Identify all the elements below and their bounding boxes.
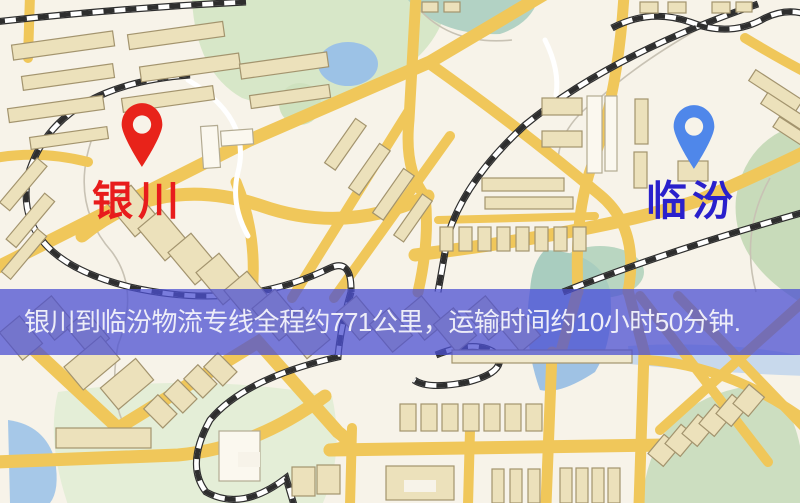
origin-label: 银川 xyxy=(78,181,198,222)
destination-label: 临汾 xyxy=(632,181,752,222)
map-pin-icon xyxy=(672,104,716,170)
route-info-text: 银川到临汾物流专线全程约771公里，运输时间约10小时50分钟. xyxy=(24,309,740,335)
map-pin-icon xyxy=(120,102,164,168)
origin-pin[interactable] xyxy=(120,102,164,168)
route-info-banner: 银川到临汾物流专线全程约771公里，运输时间约10小时50分钟. xyxy=(0,289,800,355)
map-view: 银川到临汾物流专线全程约771公里，运输时间约10小时50分钟. 银川 临汾 xyxy=(0,0,800,503)
destination-pin[interactable] xyxy=(672,104,716,170)
map-background xyxy=(0,0,800,503)
